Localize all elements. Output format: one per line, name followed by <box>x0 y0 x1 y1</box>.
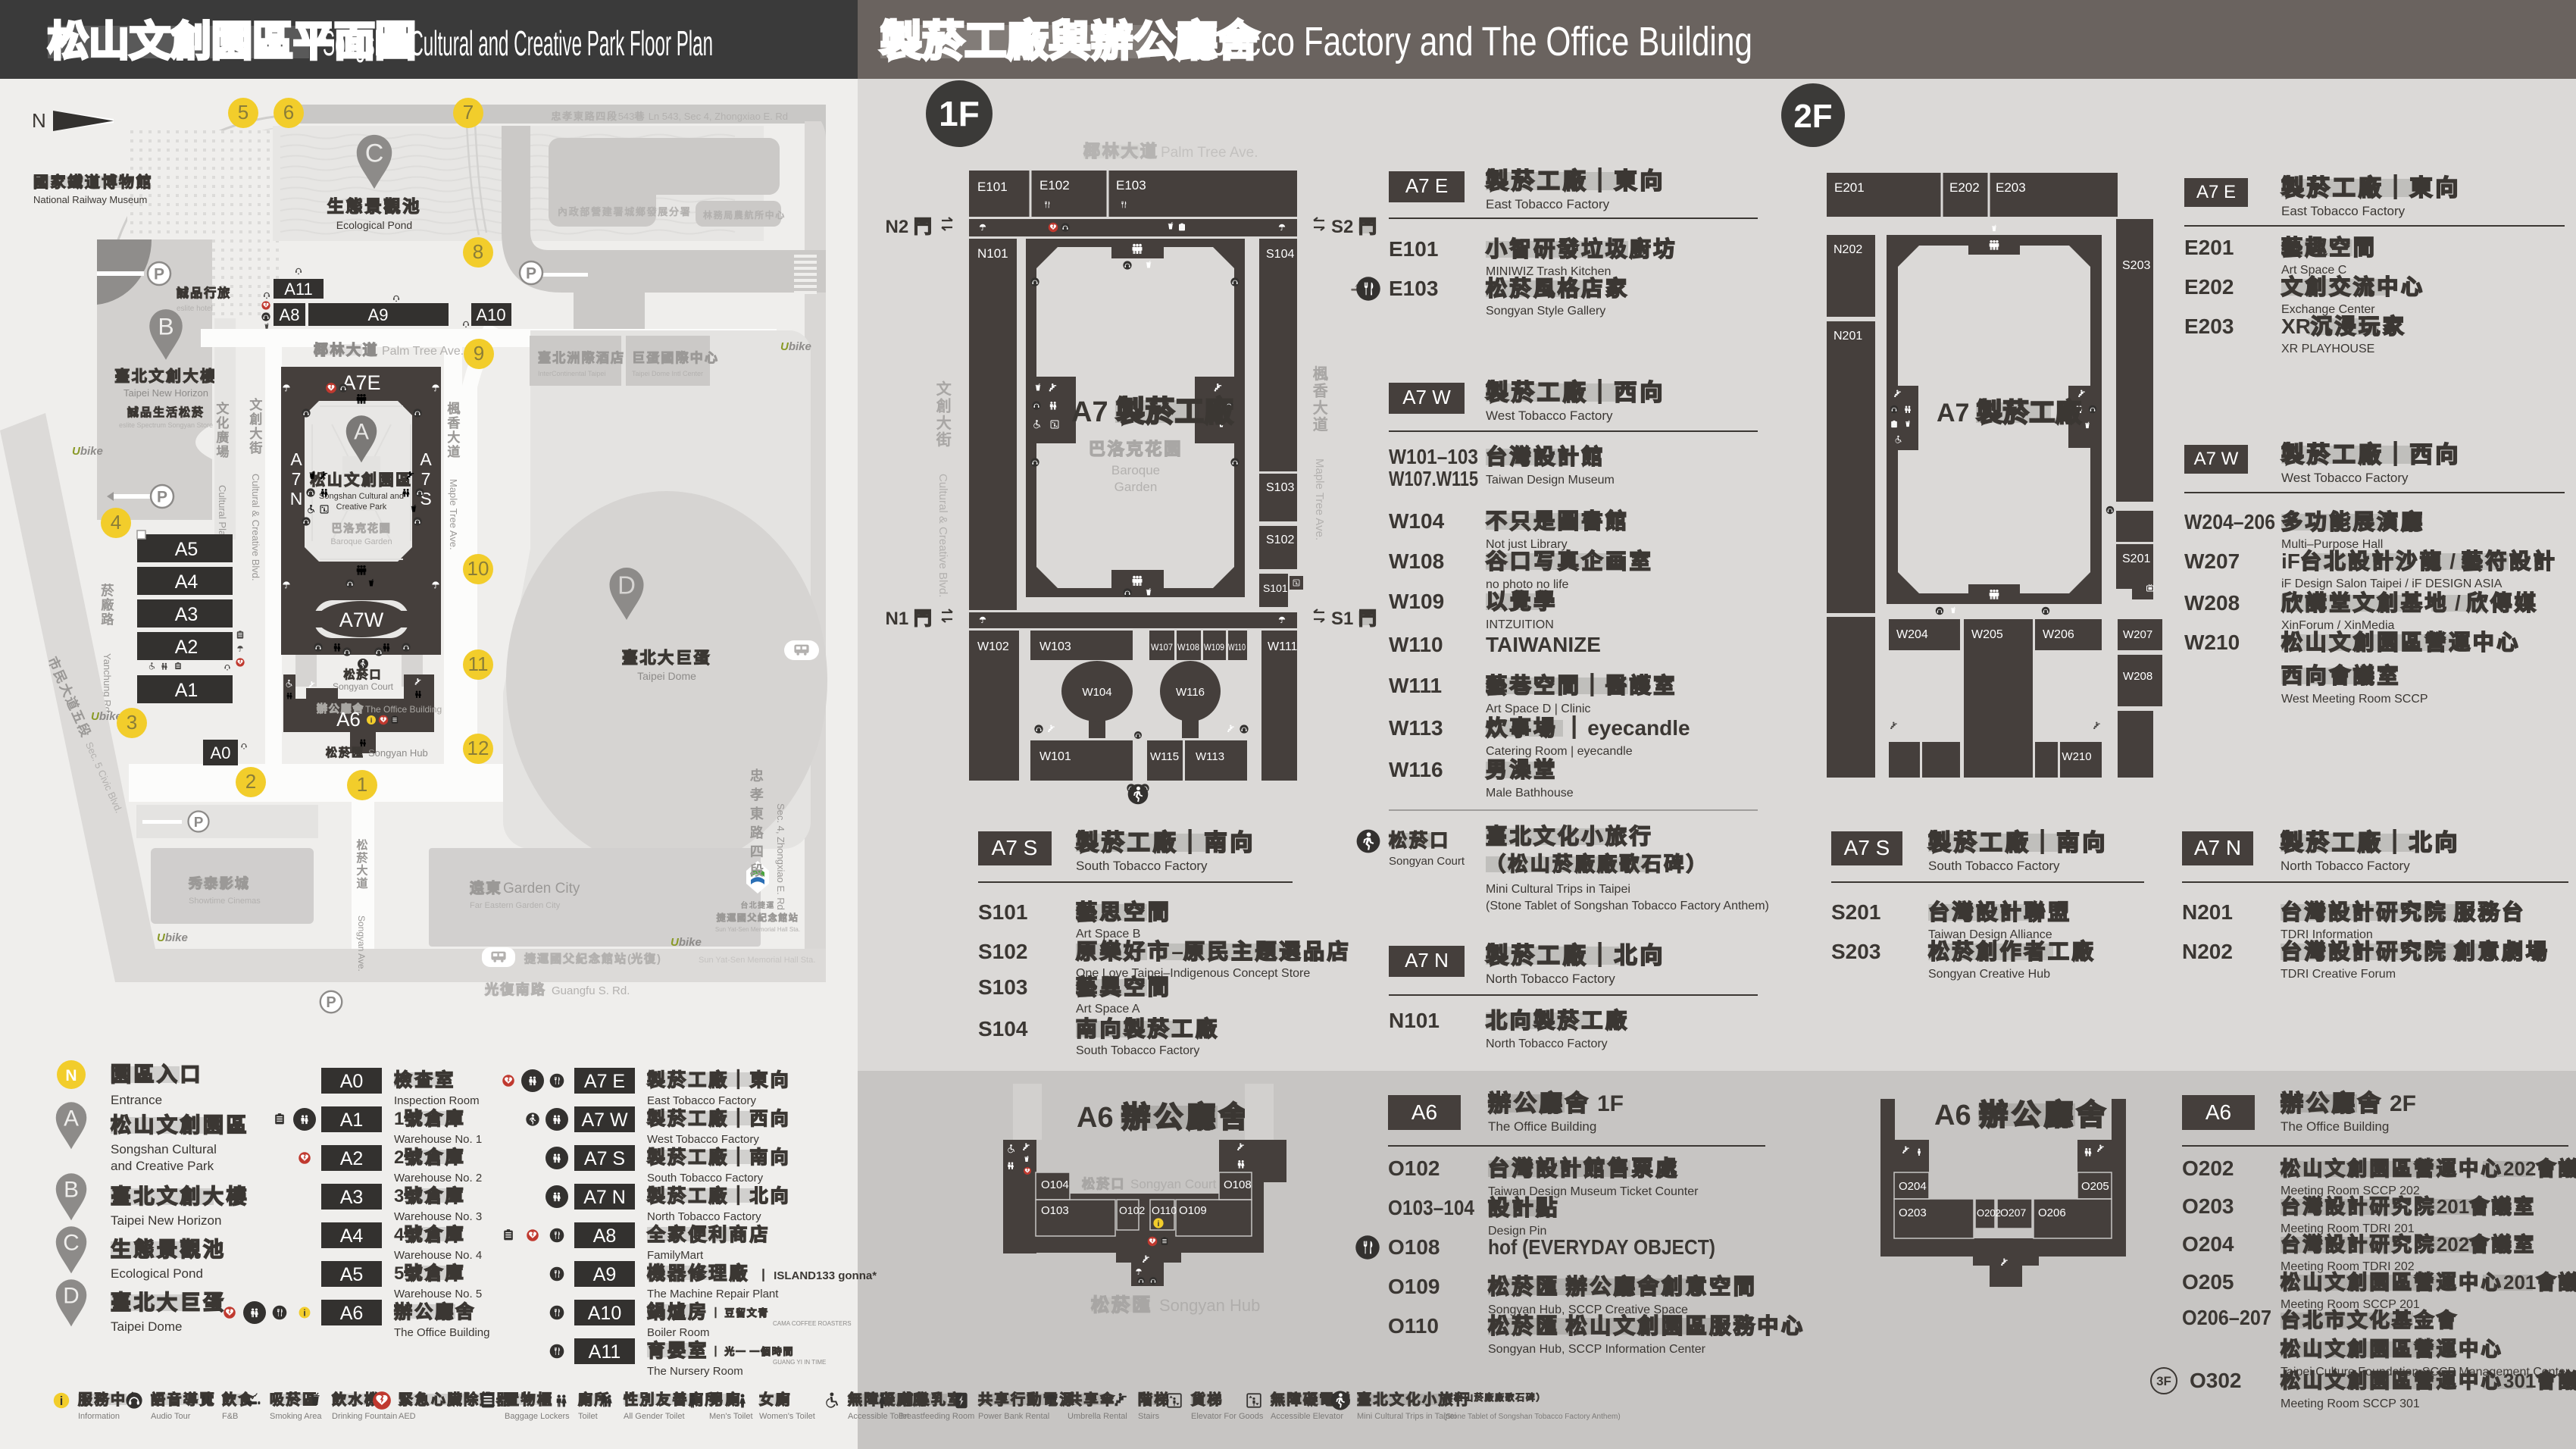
svg-text:廣: 廣 <box>216 430 230 445</box>
svg-text:A10: A10 <box>588 1303 621 1324</box>
svg-text:路: 路 <box>750 825 765 840</box>
svg-text:2F: 2F <box>1793 98 1832 135</box>
svg-text:S104: S104 <box>1266 248 1294 261</box>
svg-text:製菸工廠｜南向: 製菸工廠｜南向 <box>647 1147 791 1168</box>
svg-text:A7 N: A7 N <box>583 1187 626 1208</box>
svg-text:置物櫃: 置物櫃 <box>505 1391 554 1408</box>
svg-text:O302: O302 <box>2190 1369 2242 1392</box>
svg-text:W107: W107 <box>1151 642 1173 653</box>
svg-text:O108: O108 <box>1224 1178 1252 1191</box>
svg-text:W208: W208 <box>2123 670 2152 683</box>
svg-text:S101: S101 <box>978 900 1027 924</box>
svg-text:Sec. 4, Zhongxiao E. Rd: Sec. 4, Zhongxiao E. Rd <box>775 803 786 910</box>
svg-text:A1: A1 <box>175 680 199 701</box>
svg-text:設計點: 設計點 <box>1488 1195 1560 1219</box>
svg-text:藝巷空間｜醫護室: 藝巷空間｜醫護室 <box>1486 673 1677 697</box>
svg-text:3號倉庫: 3號倉庫 <box>394 1185 466 1206</box>
svg-text:Men's Toilet: Men's Toilet <box>709 1412 753 1421</box>
svg-text:W113: W113 <box>1389 716 1443 740</box>
svg-text:A: A <box>354 419 369 444</box>
svg-text:Ubike: Ubike <box>157 931 188 944</box>
svg-text:生態景觀池: 生態景觀池 <box>111 1238 227 1261</box>
svg-text:男澡堂: 男澡堂 <box>1486 758 1558 781</box>
svg-text:Cultural & Creative Blvd.: Cultural & Creative Blvd. <box>250 474 261 581</box>
svg-text:生態景觀池: 生態景觀池 <box>327 197 422 216</box>
svg-text:四: 四 <box>750 844 765 859</box>
svg-text:W205: W205 <box>1971 628 2003 641</box>
svg-text:松: 松 <box>356 839 369 852</box>
svg-text:E102: E102 <box>1039 178 1070 192</box>
svg-text:Songyan Ave.: Songyan Ave. <box>356 915 367 972</box>
svg-text:Ecological Pond: Ecological Pond <box>111 1266 203 1281</box>
svg-text:and Creative Park: and Creative Park <box>111 1159 214 1173</box>
svg-text:A7 S: A7 S <box>584 1148 625 1169</box>
svg-text:松菸匯: 松菸匯 <box>326 746 364 759</box>
svg-text:台北市文化基金會: 台北市文化基金會 <box>2281 1309 2459 1332</box>
svg-text:A7 S: A7 S <box>992 836 1038 859</box>
svg-text:W210: W210 <box>2062 750 2091 763</box>
svg-text:E103: E103 <box>1389 277 1438 300</box>
svg-text:Drinking Fountain: Drinking Fountain <box>332 1412 397 1421</box>
svg-text:｜ 光一 一個時間: ｜ 光一 一個時間 <box>711 1346 794 1357</box>
svg-text:機器修理廠: 機器修理廠 <box>647 1263 750 1284</box>
svg-text:Power Bank Rental: Power Bank Rental <box>978 1412 1049 1421</box>
svg-text:S103: S103 <box>978 975 1027 999</box>
svg-text:S102: S102 <box>1266 534 1294 546</box>
svg-text:11: 11 <box>468 653 489 675</box>
svg-text:Taipei New Horizon: Taipei New Horizon <box>123 387 208 399</box>
svg-text:Songyan Court: Songyan Court <box>333 681 394 692</box>
svg-text:松山文創園區營運中心201會議室: 松山文創園區營運中心201會議室 <box>2281 1271 2576 1294</box>
svg-text:Elevator For Goods: Elevator For Goods <box>1191 1412 1264 1421</box>
svg-text:臺北大巨蛋: 臺北大巨蛋 <box>622 649 712 667</box>
svg-text:Palm Tree Ave.: Palm Tree Ave. <box>382 345 464 358</box>
svg-text:製菸工廠｜西向: 製菸工廠｜西向 <box>647 1108 791 1129</box>
svg-text:A7 E: A7 E <box>1405 174 1448 197</box>
svg-text:The Office Building: The Office Building <box>365 704 442 715</box>
svg-text:秀泰影城: 秀泰影城 <box>188 875 250 891</box>
svg-text:以覺學: 以覺學 <box>1486 590 1558 613</box>
svg-text:W109: W109 <box>1389 590 1444 613</box>
svg-text:O204: O204 <box>1899 1180 1927 1193</box>
svg-text:S103: S103 <box>1266 481 1294 494</box>
svg-text:Songyan Creative Hub: Songyan Creative Hub <box>1928 968 2050 981</box>
svg-text:O206: O206 <box>2038 1206 2066 1219</box>
svg-text:｜ 豆留文青: ｜ 豆留文青 <box>711 1307 769 1319</box>
svg-text:A3: A3 <box>340 1187 364 1208</box>
svg-text:製菸工廠｜南向: 製菸工廠｜南向 <box>1928 830 2108 856</box>
svg-text:A11: A11 <box>589 1341 621 1363</box>
svg-text:Ubike: Ubike <box>780 340 811 353</box>
svg-text:忠: 忠 <box>750 768 765 784</box>
svg-text:誠品生活松菸: 誠品生活松菸 <box>127 405 205 419</box>
svg-text:A10: A10 <box>476 305 505 324</box>
svg-text:A6 辦公廳舍: A6 辦公廳舍 <box>1934 1100 2109 1131</box>
svg-text:West Tobacco Factory: West Tobacco Factory <box>2281 471 2409 485</box>
svg-text:A6: A6 <box>2206 1100 2231 1124</box>
svg-text:E202: E202 <box>1949 180 1980 195</box>
svg-text:AED: AED <box>399 1412 416 1421</box>
svg-text:W110: W110 <box>1389 633 1443 656</box>
svg-text:N201: N201 <box>2182 900 2233 924</box>
svg-text:S102: S102 <box>978 940 1027 963</box>
svg-text:O202: O202 <box>1977 1207 2001 1219</box>
svg-text:1F: 1F <box>939 94 980 133</box>
svg-text:多功能展演廳: 多功能展演廳 <box>2281 509 2425 534</box>
svg-text:台灣設計研究院 服務台: 台灣設計研究院 服務台 <box>2281 900 2526 924</box>
svg-text:Taipei Dome Intl Center: Taipei Dome Intl Center <box>632 370 703 377</box>
svg-text:eslite Spectrum Songyan Store: eslite Spectrum Songyan Store <box>119 421 213 429</box>
svg-text:O203: O203 <box>1899 1206 1927 1219</box>
svg-text:W108: W108 <box>1389 549 1444 573</box>
svg-text:2號倉庫: 2號倉庫 <box>394 1147 466 1168</box>
svg-text:廠: 廠 <box>101 597 115 612</box>
svg-text:The Office Building: The Office Building <box>2281 1119 2389 1134</box>
svg-text:台灣設計研究院202會議室: 台灣設計研究院202會議室 <box>2281 1233 2536 1256</box>
svg-text:Taipei New Horizon: Taipei New Horizon <box>111 1213 221 1228</box>
svg-text:12: 12 <box>467 737 489 759</box>
svg-text:捷運國父紀念館站: 捷運國父紀念館站 <box>717 912 799 923</box>
svg-text:內政部營建署城鄉發展分署: 內政部營建署城鄉發展分署 <box>558 206 691 218</box>
svg-text:A7 N: A7 N <box>1405 949 1449 972</box>
svg-text:松山文創園區營運中心: 松山文創園區營運中心 <box>2281 1338 2503 1360</box>
svg-text:O104: O104 <box>1041 1178 1069 1191</box>
svg-text:台灣設計研究院201會議室: 台灣設計研究院201會議室 <box>2281 1195 2536 1218</box>
svg-text:West Tobacco Factory: West Tobacco Factory <box>1486 408 1613 423</box>
svg-text:iF Design Salon Taipei / iF DE: iF Design Salon Taipei / iF DESIGN ASIA <box>2281 577 2503 590</box>
svg-text:Art Space A: Art Space A <box>1076 1003 1140 1016</box>
svg-text:N101: N101 <box>1389 1009 1440 1032</box>
svg-text:Information: Information <box>78 1412 120 1421</box>
svg-text:FamilyMart: FamilyMart <box>647 1249 704 1262</box>
svg-text:臺北文創大樓: 臺北文創大樓 <box>114 367 217 385</box>
svg-text:道: 道 <box>356 877 369 890</box>
svg-text:台灣設計館: 台灣設計館 <box>1486 444 1605 468</box>
svg-text:吸菸區: 吸菸區 <box>270 1391 319 1408</box>
svg-text:Smoking Area: Smoking Area <box>270 1412 322 1421</box>
svg-text:W110: W110 <box>1228 642 1246 653</box>
svg-text:大: 大 <box>356 865 369 878</box>
svg-text:藝思空間: 藝思空間 <box>1076 900 1171 924</box>
svg-text:Sun Yat-Sen Memorial Hall Sta.: Sun Yat-Sen Memorial Hall Sta. <box>715 926 800 933</box>
svg-text:W104: W104 <box>1082 686 1111 699</box>
svg-text:Baroque Garden: Baroque Garden <box>330 537 392 546</box>
svg-text:(Stone Tablet of Songshan Toba: (Stone Tablet of Songshan Tobacco Factor… <box>1486 900 1769 912</box>
svg-text:10: 10 <box>467 557 489 580</box>
svg-text:Guangfu S. Rd.: Guangfu S. Rd. <box>552 984 630 997</box>
svg-text:W102: W102 <box>977 640 1009 653</box>
svg-text:4: 4 <box>111 511 121 534</box>
svg-text:文: 文 <box>216 402 230 416</box>
svg-text:S203: S203 <box>1831 940 1880 963</box>
svg-text:Breastfeeding Room: Breastfeeding Room <box>899 1412 974 1421</box>
svg-text:7: 7 <box>421 469 431 489</box>
svg-text:創: 創 <box>249 412 264 427</box>
svg-text:S201: S201 <box>1831 900 1880 924</box>
svg-text:Songyan Style Gallery: Songyan Style Gallery <box>1486 305 1605 318</box>
svg-text:共享傘: 共享傘 <box>1068 1391 1117 1408</box>
svg-text:N: N <box>65 1067 77 1084</box>
svg-text:Taipei Dome: Taipei Dome <box>637 670 696 682</box>
svg-text:誠品行旅: 誠品行旅 <box>177 286 231 300</box>
svg-text:A3: A3 <box>175 604 199 625</box>
svg-text:（松山菸廠廠歌石碑）: （松山菸廠廠歌石碑） <box>1443 1391 1546 1403</box>
svg-text:The Office Building: The Office Building <box>1488 1119 1596 1134</box>
svg-text:Songyan Hub: Songyan Hub <box>368 747 428 759</box>
svg-text:製菸工廠｜北向: 製菸工廠｜北向 <box>1486 943 1665 969</box>
svg-text:A6: A6 <box>340 1303 364 1324</box>
svg-text:小智研發垃圾廚坊: 小智研發垃圾廚坊 <box>1486 236 1677 261</box>
svg-text:iF台北設計沙龍 / 藝符設計: iF台北設計沙龍 / 藝符設計 <box>2281 549 2557 573</box>
svg-text:O109: O109 <box>1388 1275 1440 1298</box>
svg-text:O103: O103 <box>1041 1204 1069 1217</box>
svg-text:香: 香 <box>1313 382 1330 399</box>
svg-text:W108: W108 <box>1177 642 1199 653</box>
svg-text:Songyan Court: Songyan Court <box>1130 1177 1217 1191</box>
svg-text:捷運國父紀念館站(光復): 捷運國父紀念館站(光復) <box>524 952 661 965</box>
svg-text:不只是圖書館: 不只是圖書館 <box>1486 509 1630 533</box>
svg-text:育嬰室: 育嬰室 <box>647 1340 708 1361</box>
svg-text:A4: A4 <box>175 571 199 593</box>
svg-text:巴洛克花園: 巴洛克花園 <box>332 522 392 534</box>
svg-text:The Machine Repair Plant: The Machine Repair Plant <box>647 1288 779 1300</box>
svg-text:Warehouse No. 4: Warehouse No. 4 <box>394 1249 482 1262</box>
svg-text:W207: W207 <box>2184 549 2240 573</box>
svg-text:W116: W116 <box>1389 758 1443 781</box>
svg-text:段: 段 <box>750 863 765 878</box>
svg-text:松菸風格店家: 松菸風格店家 <box>1486 276 1630 300</box>
svg-text:辦公廳舍 2F: 辦公廳舍 2F <box>2281 1091 2416 1116</box>
svg-text:N202: N202 <box>1834 243 1862 256</box>
svg-text:臺北文化小旅行: 臺北文化小旅行 <box>1486 824 1653 848</box>
svg-text:Maple Tree Ave.: Maple Tree Ave. <box>448 479 459 550</box>
svg-text:2: 2 <box>245 770 256 793</box>
svg-text:Warehouse No. 1: Warehouse No. 1 <box>394 1133 482 1146</box>
svg-text:O204: O204 <box>2182 1232 2234 1256</box>
svg-text:D: D <box>617 571 636 599</box>
svg-text:E203: E203 <box>1996 180 2026 195</box>
svg-text:W103: W103 <box>1039 640 1071 653</box>
svg-text:Taiwan Design Museum: Taiwan Design Museum <box>1486 474 1615 487</box>
svg-text:N202: N202 <box>2182 940 2233 963</box>
svg-text:9: 9 <box>474 342 484 365</box>
svg-text:GUANG YI IN TIME: GUANG YI IN TIME <box>773 1359 826 1366</box>
svg-text:O207: O207 <box>2000 1206 2026 1219</box>
svg-text:Stairs: Stairs <box>1138 1412 1160 1421</box>
svg-text:性別友善廁所: 性別友善廁所 <box>624 1391 721 1408</box>
svg-text:B: B <box>64 1177 79 1202</box>
svg-text:S1 門: S1 門 <box>1331 609 1379 629</box>
svg-text:E103: E103 <box>1116 178 1146 192</box>
svg-text:台灣設計研究院 創意劇場: 台灣設計研究院 創意劇場 <box>2281 939 2549 963</box>
svg-text:製菸工廠｜西向: 製菸工廠｜西向 <box>2281 442 2461 468</box>
svg-text:8: 8 <box>473 240 483 263</box>
svg-text:O202: O202 <box>2182 1156 2234 1180</box>
svg-text:大: 大 <box>447 430 461 445</box>
svg-text:Sun Yat-Sen Memorial Hall Sta.: Sun Yat-Sen Memorial Hall Sta. <box>699 956 815 965</box>
svg-text:Garden: Garden <box>1114 480 1158 494</box>
svg-text:O205: O205 <box>2182 1270 2234 1294</box>
svg-text:｜ ISLAND133 gonna*: ｜ ISLAND133 gonna* <box>758 1269 877 1282</box>
svg-text:XR沉浸玩家: XR沉浸玩家 <box>2281 314 2406 338</box>
svg-text:Audio Tour: Audio Tour <box>151 1412 191 1421</box>
svg-text:Umbrella Rental: Umbrella Rental <box>1068 1412 1127 1421</box>
svg-text:Art Space D | Clinic: Art Space D | Clinic <box>1486 703 1590 715</box>
svg-text:Creative Park: Creative Park <box>336 502 387 512</box>
svg-text:A: A <box>290 449 302 469</box>
svg-text:菸: 菸 <box>356 852 369 865</box>
svg-text:7: 7 <box>463 101 474 124</box>
svg-text:West Tobacco Factory: West Tobacco Factory <box>647 1133 759 1146</box>
svg-text:N: N <box>32 109 46 132</box>
svg-text:檢查室: 檢查室 <box>394 1069 455 1091</box>
svg-text:W109: W109 <box>1204 642 1224 653</box>
svg-text:Far Eastern Garden City: Far Eastern Garden City <box>470 901 561 910</box>
svg-text:化: 化 <box>216 416 230 430</box>
svg-text:W204: W204 <box>1896 628 1928 641</box>
svg-text:North Tobacco Factory: North Tobacco Factory <box>1486 1037 1608 1050</box>
svg-text:臺北洲際酒店: 臺北洲際酒店 <box>538 350 625 365</box>
svg-text:South Tobacco Factory: South Tobacco Factory <box>1076 859 1208 873</box>
svg-text:Songyan Court: Songyan Court <box>1389 855 1465 868</box>
svg-text:C: C <box>365 139 384 168</box>
svg-text:N1 門: N1 門 <box>886 609 934 629</box>
svg-text:National Railway Museum: National Railway Museum <box>33 194 147 205</box>
svg-text:辦公廳舍: 辦公廳舍 <box>394 1301 476 1322</box>
svg-text:W208: W208 <box>2184 591 2240 615</box>
svg-text:F&B: F&B <box>222 1412 238 1421</box>
svg-text:W101–103: W101–103 <box>1389 445 1478 468</box>
svg-text:TAIWANIZE: TAIWANIZE <box>1486 633 1601 656</box>
svg-text:E101: E101 <box>977 180 1008 194</box>
svg-text:Boiler Room: Boiler Room <box>647 1326 710 1339</box>
svg-text:W116: W116 <box>1176 686 1205 699</box>
svg-text:South Tobacco Factory: South Tobacco Factory <box>1076 1044 1199 1057</box>
svg-text:A6 辦公廳舍: A6 辦公廳舍 <box>1077 1102 1252 1134</box>
svg-text:香: 香 <box>447 416 461 430</box>
svg-text:eslite hotel: eslite hotel <box>177 305 213 313</box>
svg-text:A7 W: A7 W <box>2194 449 2239 469</box>
svg-text:XR PLAYHOUSE: XR PLAYHOUSE <box>2281 343 2374 355</box>
svg-text:台北捷運: 台北捷運 <box>740 900 774 910</box>
svg-text:原樂好市–原民主題選品店: 原樂好市–原民主題選品店 <box>1076 939 1351 963</box>
svg-text:O206–207: O206–207 <box>2182 1306 2271 1329</box>
svg-text:C: C <box>63 1230 79 1255</box>
svg-text:A5: A5 <box>340 1264 364 1285</box>
svg-text:路: 路 <box>101 612 115 627</box>
svg-text:East Tobacco Factory: East Tobacco Factory <box>2281 204 2406 218</box>
svg-text:W107.W115: W107.W115 <box>1389 467 1478 490</box>
svg-text:A7E: A7E <box>342 371 380 394</box>
svg-text:O108: O108 <box>1388 1235 1440 1259</box>
svg-text:North Tobacco Factory: North Tobacco Factory <box>647 1210 761 1223</box>
svg-text:製菸工廠｜西向: 製菸工廠｜西向 <box>1486 380 1665 405</box>
svg-text:S203: S203 <box>2122 259 2150 272</box>
svg-text:West Meeting Room SCCP: West Meeting Room SCCP <box>2281 693 2428 706</box>
svg-text:Inspection Room: Inspection Room <box>394 1094 480 1107</box>
svg-text:INTZUITION: INTZUITION <box>1486 618 1554 631</box>
svg-text:Warehouse No. 3: Warehouse No. 3 <box>394 1210 482 1223</box>
svg-text:Songyan Hub, SCCP Information: Songyan Hub, SCCP Information Center <box>1488 1343 1706 1356</box>
svg-text:N: N <box>290 489 303 509</box>
svg-text:A7 E: A7 E <box>2196 182 2236 202</box>
svg-text:楓: 楓 <box>447 402 461 416</box>
svg-text:O109: O109 <box>1179 1204 1207 1217</box>
svg-text:A7 製菸工廠: A7 製菸工廠 <box>1937 398 2082 427</box>
svg-text:InterContinental Taipei: InterContinental Taipei <box>538 370 605 377</box>
svg-text:5號倉庫: 5號倉庫 <box>394 1263 466 1284</box>
svg-text:W206: W206 <box>2043 628 2074 641</box>
svg-text:A7 W: A7 W <box>1402 386 1451 408</box>
svg-text:製菸工廠｜東向: 製菸工廠｜東向 <box>647 1069 791 1091</box>
svg-text:Cultural & Creative Blvd.: Cultural & Creative Blvd. <box>936 474 949 597</box>
svg-text:園區入口: 園區入口 <box>111 1063 203 1086</box>
svg-text:E201: E201 <box>1834 180 1865 195</box>
svg-text:A7 E: A7 E <box>584 1071 625 1092</box>
svg-text:A1: A1 <box>340 1109 364 1131</box>
svg-text:女廁: 女廁 <box>759 1391 792 1408</box>
svg-text:S101: S101 <box>1263 582 1288 594</box>
svg-text:松菸匯 辦公廳舍創意空間: 松菸匯 辦公廳舍創意空間 <box>1488 1274 1757 1298</box>
svg-text:松菸口: 松菸口 <box>343 668 382 681</box>
svg-text:E202: E202 <box>2184 275 2234 299</box>
svg-text:Songyan Hub: Songyan Hub <box>1159 1296 1260 1315</box>
svg-text:South Tobacco Factory: South Tobacco Factory <box>647 1172 764 1185</box>
svg-text:光復南路: 光復南路 <box>484 981 546 997</box>
svg-text:菸: 菸 <box>101 584 115 598</box>
svg-text:製菸工廠｜北向: 製菸工廠｜北向 <box>647 1185 791 1206</box>
svg-text:Garden City: Garden City <box>503 881 580 897</box>
svg-text:N101: N101 <box>977 246 1008 261</box>
svg-text:5: 5 <box>238 101 249 124</box>
svg-text:A5: A5 <box>175 539 199 560</box>
svg-text:台灣設計館售票處: 台灣設計館售票處 <box>1488 1156 1680 1180</box>
svg-text:A2: A2 <box>340 1148 364 1169</box>
svg-text:A2: A2 <box>175 637 199 658</box>
svg-text:台灣設計聯盟: 台灣設計聯盟 <box>1928 900 2072 924</box>
svg-text:B: B <box>158 312 174 340</box>
svg-text:All Gender Toilet: All Gender Toilet <box>624 1412 685 1421</box>
svg-text:D: D <box>63 1283 79 1308</box>
svg-text:國家鐵道博物館: 國家鐵道博物館 <box>33 173 153 191</box>
svg-text:The Nursery Room: The Nursery Room <box>647 1365 743 1378</box>
svg-text:文: 文 <box>936 380 954 398</box>
svg-text:Mini Cultural Trips in Taipei: Mini Cultural Trips in Taipei <box>1357 1412 1456 1421</box>
svg-text:階梯: 階梯 <box>1138 1391 1171 1408</box>
svg-text:S201: S201 <box>2122 552 2150 565</box>
svg-text:A0: A0 <box>340 1071 364 1092</box>
svg-text:Women's Toilet: Women's Toilet <box>759 1412 815 1421</box>
svg-text:Art Space B: Art Space B <box>1076 928 1140 940</box>
svg-text:辦公廳舍 1F: 辦公廳舍 1F <box>1488 1091 1624 1116</box>
svg-text:東: 東 <box>750 806 765 822</box>
svg-text:W115: W115 <box>1150 750 1179 763</box>
svg-text:創: 創 <box>936 397 954 415</box>
svg-text:A7 N: A7 N <box>2194 836 2241 859</box>
svg-text:Toilet: Toilet <box>578 1412 598 1421</box>
svg-text:3: 3 <box>127 711 137 734</box>
svg-text:Warehouse No. 5: Warehouse No. 5 <box>394 1288 482 1300</box>
svg-text:製菸工廠｜東向: 製菸工廠｜東向 <box>2281 175 2461 201</box>
svg-text:忠孝東路四段543巷 Ln 543, Sec 4, Zhon: 忠孝東路四段543巷 Ln 543, Sec 4, Zhongxiao E. R… <box>551 111 788 122</box>
svg-text:N2 門: N2 門 <box>886 217 934 237</box>
svg-text:Entrance: Entrance <box>111 1093 162 1107</box>
svg-text:製菸工廠｜東向: 製菸工廠｜東向 <box>1486 168 1665 194</box>
svg-text:A8: A8 <box>280 305 300 324</box>
svg-text:W111: W111 <box>1268 640 1298 653</box>
svg-text:街: 街 <box>936 431 954 449</box>
svg-text:Taipei Dome: Taipei Dome <box>111 1319 183 1334</box>
